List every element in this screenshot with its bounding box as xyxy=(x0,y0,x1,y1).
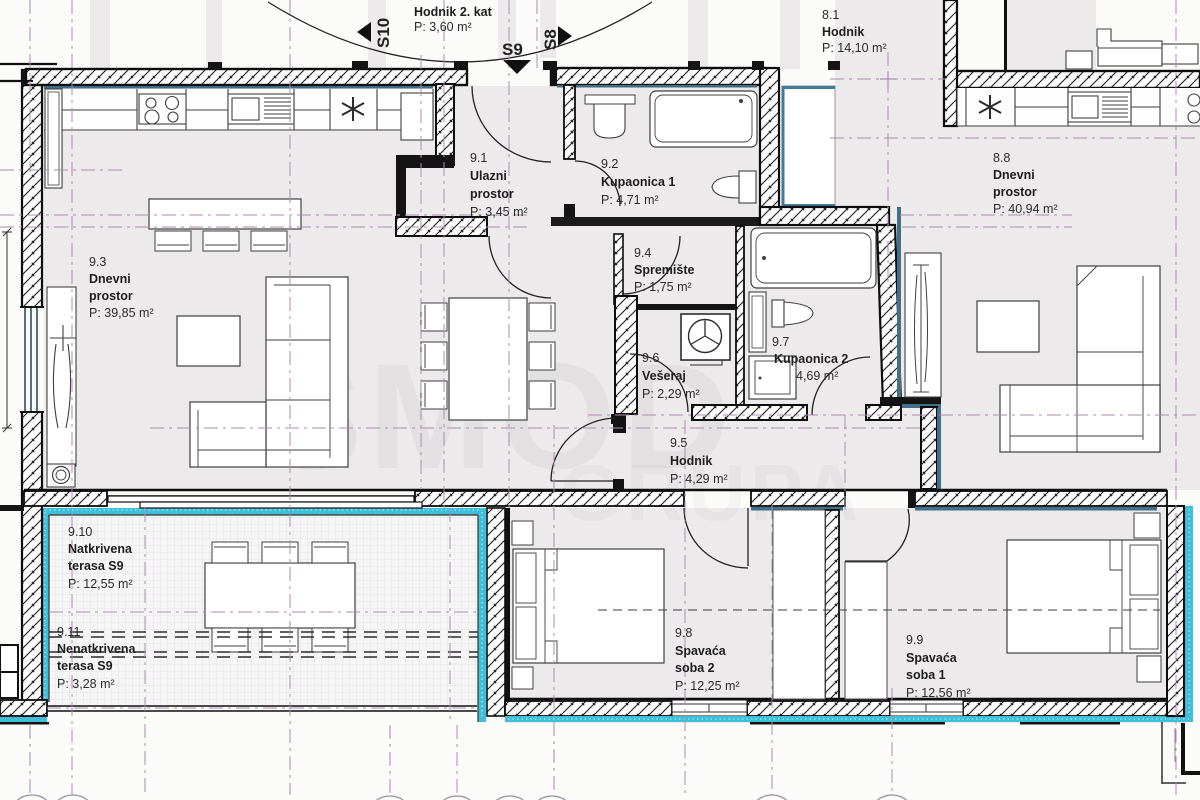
svg-text:P: 12,25 m²: P: 12,25 m² xyxy=(675,679,740,693)
svg-text:Vešeraj: Vešeraj xyxy=(642,369,686,383)
svg-text:prostor: prostor xyxy=(993,185,1037,199)
svg-text:9.4: 9.4 xyxy=(634,246,651,260)
svg-text:9.3: 9.3 xyxy=(89,255,106,269)
svg-text:P: 40,94 m²: P: 40,94 m² xyxy=(993,202,1058,216)
svg-text:P: 12,55 m²: P: 12,55 m² xyxy=(68,577,133,591)
svg-text:P: 2,29 m²: P: 2,29 m² xyxy=(642,387,700,401)
svg-text:P: 3,60 m²: P: 3,60 m² xyxy=(414,20,472,34)
svg-text:S8: S8 xyxy=(541,29,560,50)
svg-text:Natkrivena: Natkrivena xyxy=(68,542,133,556)
svg-text:9.7: 9.7 xyxy=(772,335,789,349)
svg-text:P: 4,71 m²: P: 4,71 m² xyxy=(601,193,659,207)
svg-text:soba 2: soba 2 xyxy=(675,661,715,675)
svg-text:P: 3,45 m²: P: 3,45 m² xyxy=(470,205,528,219)
svg-text:9.1: 9.1 xyxy=(470,151,487,165)
svg-text:Dnevni: Dnevni xyxy=(89,272,131,286)
svg-text:prostor: prostor xyxy=(470,187,514,201)
svg-text:Ulazni: Ulazni xyxy=(470,169,507,183)
svg-text:soba 1: soba 1 xyxy=(906,668,946,682)
svg-text:Hodnik 2. kat: Hodnik 2. kat xyxy=(414,5,493,19)
svg-text:9.10: 9.10 xyxy=(68,525,92,539)
svg-text:P: 3,28 m²: P: 3,28 m² xyxy=(57,677,115,691)
svg-text:P: 14,10 m²: P: 14,10 m² xyxy=(822,41,887,55)
svg-text:4,69 m²: 4,69 m² xyxy=(796,369,838,383)
svg-text:terasa S9: terasa S9 xyxy=(57,659,113,673)
svg-text:Hodnik: Hodnik xyxy=(670,454,712,468)
svg-text:terasa S9: terasa S9 xyxy=(68,559,124,573)
svg-text:S10: S10 xyxy=(374,18,393,48)
svg-text:P: 4,29 m²: P: 4,29 m² xyxy=(670,472,728,486)
svg-text:Spavaća: Spavaća xyxy=(906,651,958,665)
svg-text:Hodnik: Hodnik xyxy=(822,25,864,39)
svg-text:Spavaća: Spavaća xyxy=(675,644,727,658)
svg-text:9.5: 9.5 xyxy=(670,436,687,450)
svg-text:S9: S9 xyxy=(502,40,523,59)
svg-text:9.8: 9.8 xyxy=(675,626,692,640)
svg-text:prostor: prostor xyxy=(89,289,133,303)
svg-text:Kupaonica 1: Kupaonica 1 xyxy=(601,175,675,189)
svg-text:Dnevni: Dnevni xyxy=(993,168,1035,182)
svg-text:9.11: 9.11 xyxy=(57,625,80,639)
svg-text:Spremište: Spremište xyxy=(634,263,694,277)
svg-text:9.9: 9.9 xyxy=(906,633,923,647)
svg-text:P: 12,56 m²: P: 12,56 m² xyxy=(906,686,971,700)
svg-text:9.2: 9.2 xyxy=(601,157,618,171)
svg-text:9.6: 9.6 xyxy=(642,351,659,365)
svg-text:Kupaonica 2: Kupaonica 2 xyxy=(774,352,848,366)
svg-text:8.1: 8.1 xyxy=(822,8,839,22)
svg-text:8.8: 8.8 xyxy=(993,151,1010,165)
svg-text:P: 39,85 m²: P: 39,85 m² xyxy=(89,306,154,320)
svg-text:P: 1,75 m²: P: 1,75 m² xyxy=(634,280,692,294)
svg-text:Nenatkrivena: Nenatkrivena xyxy=(57,642,137,656)
